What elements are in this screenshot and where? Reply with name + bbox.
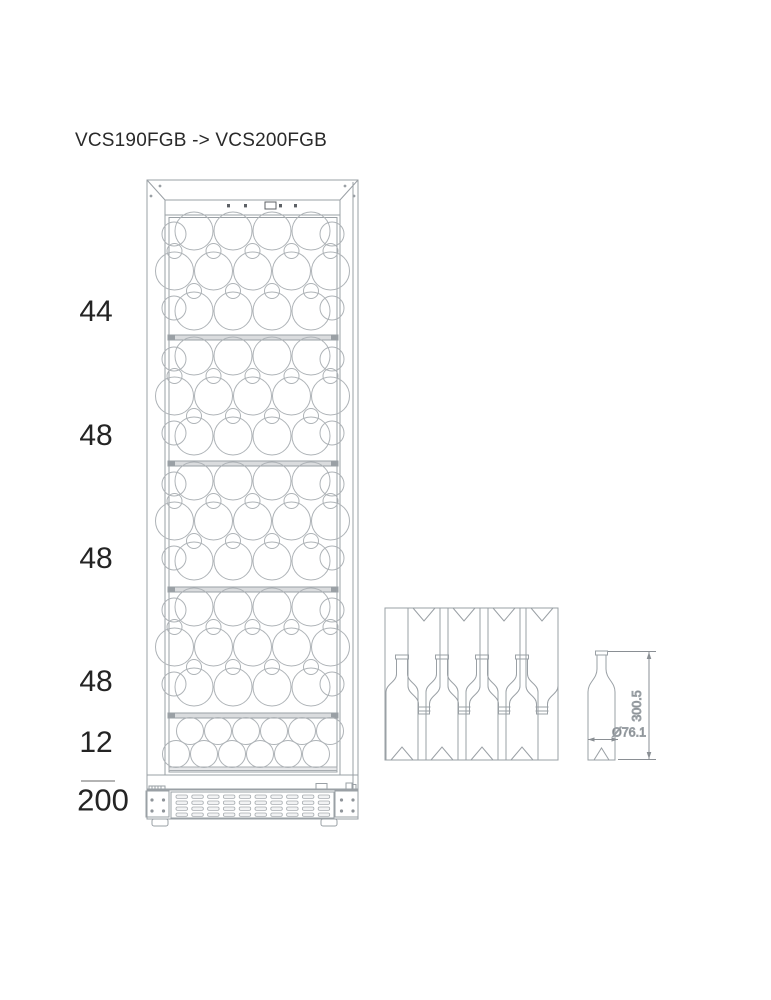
control-panel [165, 202, 340, 218]
bottle-dimension-detail: 300.5 Ø76.1 [588, 651, 656, 760]
bottle-lip [596, 651, 608, 655]
drawing-canvas: VCS190FGB -> VCS200FGB 44 48 48 48 12 20… [0, 0, 771, 1000]
left-foot [152, 819, 168, 826]
shelf-outline [385, 608, 558, 760]
bottle-pattern [156, 212, 350, 768]
rack-bottles [386, 608, 558, 760]
bottle-outline [588, 655, 615, 760]
control-button-icon [279, 204, 282, 207]
bottom-rail [169, 767, 337, 771]
plinth [146, 775, 358, 826]
control-button-icon [294, 204, 297, 207]
shelf-top-view-detail [385, 608, 558, 760]
frame-screw-icons [150, 185, 356, 198]
technical-diagram: 300.5 Ø76.1 [0, 0, 771, 1000]
bottle-diameter-label: Ø76.1 [612, 726, 646, 740]
right-foot [321, 819, 337, 826]
right-bracket-plate [335, 791, 358, 817]
cabinet-front-view [146, 180, 358, 826]
bottle-punt [594, 748, 609, 760]
bottle-height-label: 300.5 [630, 690, 644, 721]
left-bracket-plate [146, 791, 169, 817]
vent-slots [176, 795, 330, 816]
display-icon [265, 202, 276, 209]
control-button-icon [244, 204, 247, 207]
control-button-icon [227, 204, 230, 207]
door-inner-frame [165, 200, 340, 775]
